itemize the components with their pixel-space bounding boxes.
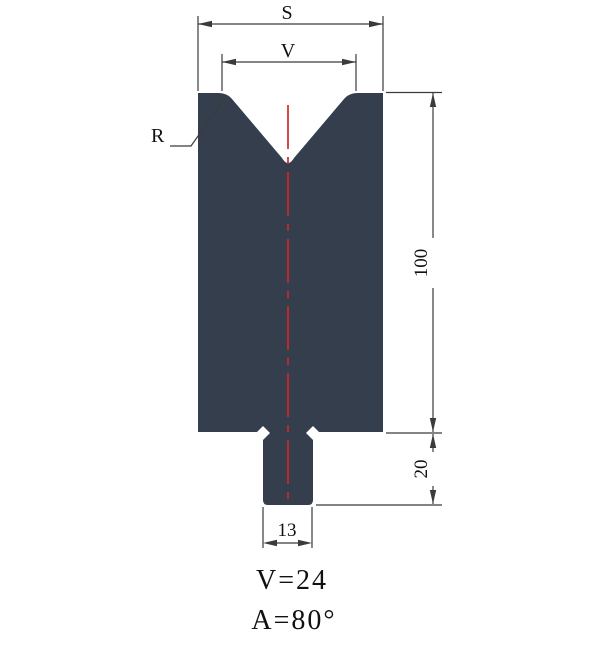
drawing-canvas: S V R 100 20 13 xyxy=(0,0,600,650)
dimension-tang-height-20: 20 xyxy=(316,434,442,505)
dim-label-s: S xyxy=(281,2,292,24)
dim-label-v: V xyxy=(281,40,296,62)
annotation-angle-value: A=80° xyxy=(251,605,336,636)
arrowhead-right xyxy=(369,21,383,27)
dimension-tang-width-13: 13 xyxy=(263,507,312,548)
arrowhead-right xyxy=(342,59,356,65)
arrowhead-top xyxy=(430,93,436,107)
annotation-v-value: V=24 xyxy=(256,565,328,596)
arrowhead-bottom xyxy=(430,490,436,504)
arrowhead-left xyxy=(222,59,236,65)
dim-value-tang-width: 13 xyxy=(278,520,297,541)
arrowhead-left xyxy=(263,540,277,546)
dimension-v: V xyxy=(222,40,356,91)
die-body xyxy=(198,93,383,505)
arrowhead-right xyxy=(298,540,312,546)
arrowhead-top xyxy=(430,434,436,448)
radius-label: R xyxy=(151,125,165,147)
arrowhead-bottom xyxy=(430,418,436,432)
die-technical-drawing: S V R 100 20 13 xyxy=(0,0,600,650)
dim-value-height: 100 xyxy=(411,249,432,278)
arrowhead-left xyxy=(198,21,212,27)
dim-value-tang-height: 20 xyxy=(411,460,432,479)
dimension-height-100: 100 xyxy=(386,93,442,434)
